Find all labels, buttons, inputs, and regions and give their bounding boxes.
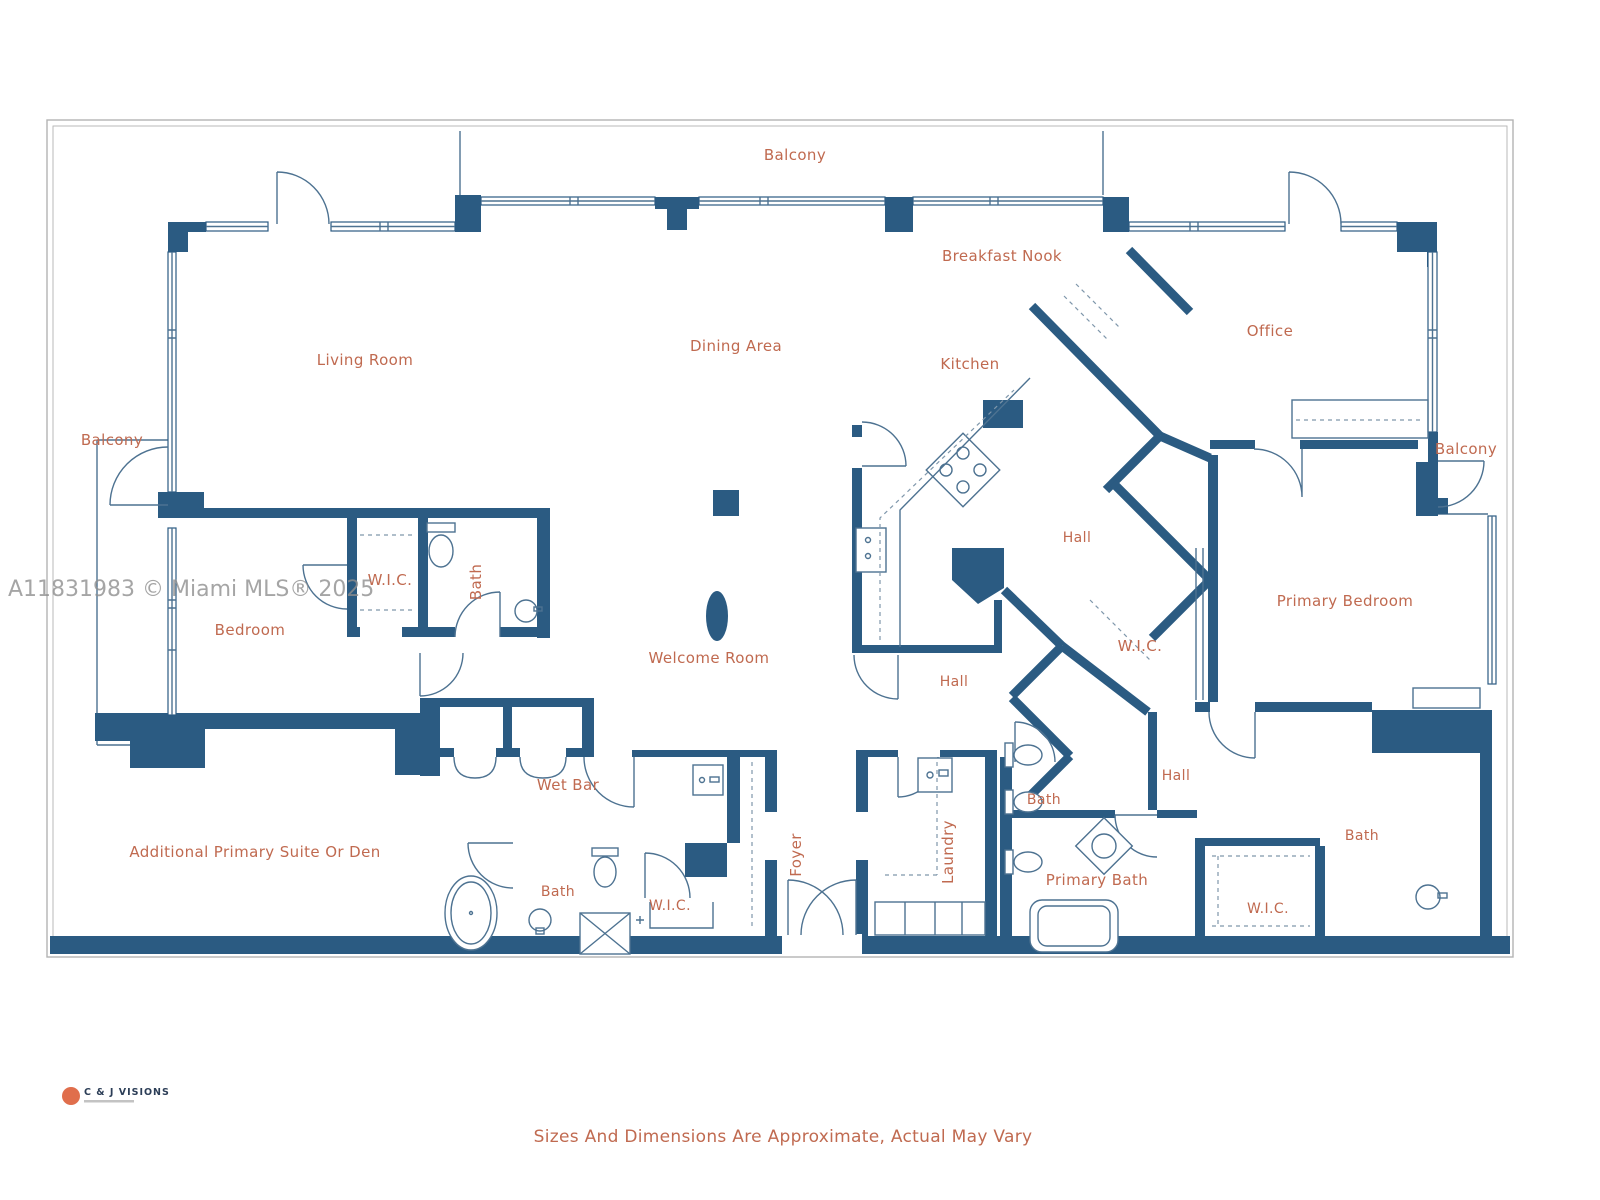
washer-fixture bbox=[918, 758, 952, 792]
room-label-foyer: Foyer bbox=[787, 833, 805, 877]
room-label-laundry: Laundry bbox=[939, 820, 957, 884]
room-labels: Balcony Breakfast Nook Office Living Roo… bbox=[81, 146, 1497, 917]
room-label-balcony-right: Balcony bbox=[1435, 440, 1497, 458]
room-label-balcony-left: Balcony bbox=[81, 431, 143, 449]
room-label-hall-center: Hall bbox=[940, 674, 969, 690]
floor-plan-page: Balcony Breakfast Nook Office Living Roo… bbox=[0, 0, 1600, 1200]
room-label-living-room: Living Room bbox=[317, 351, 413, 369]
room-label-hall-upper: Hall bbox=[1063, 530, 1092, 546]
room-label-balcony-top: Balcony bbox=[764, 146, 826, 164]
windows bbox=[168, 197, 1496, 715]
room-label-kitchen: Kitchen bbox=[940, 355, 999, 373]
logo-tagline-bar bbox=[84, 1100, 134, 1103]
logo-circle-icon bbox=[62, 1087, 80, 1105]
room-label-hall-lower: Hall bbox=[1162, 768, 1191, 784]
room-label-primary-bedroom: Primary Bedroom bbox=[1277, 592, 1414, 610]
room-label-bath-small: Bath bbox=[1027, 792, 1061, 808]
fixtures bbox=[427, 433, 1447, 954]
room-label-bath-left: Bath bbox=[467, 564, 485, 600]
page-frame bbox=[47, 120, 1513, 957]
room-label-wic-right: W.I.C. bbox=[1247, 901, 1289, 917]
floor-plan-drawing: Balcony Breakfast Nook Office Living Roo… bbox=[0, 0, 1600, 1200]
doors bbox=[110, 172, 1484, 935]
room-label-wic-mid: W.I.C. bbox=[1118, 637, 1163, 655]
room-label-bath-bottom-left: Bath bbox=[541, 884, 575, 900]
room-label-dining-area: Dining Area bbox=[690, 337, 782, 355]
room-label-welcome-room: Welcome Room bbox=[649, 649, 770, 667]
company-logo: C & J VISIONS bbox=[62, 1087, 170, 1105]
room-label-bedroom: Bedroom bbox=[215, 621, 286, 639]
room-label-office: Office bbox=[1247, 322, 1293, 340]
room-label-bath-right: Bath bbox=[1345, 828, 1379, 844]
disclaimer-text: Sizes And Dimensions Are Approximate, Ac… bbox=[534, 1127, 1033, 1147]
room-label-primary-bath: Primary Bath bbox=[1046, 871, 1148, 889]
stove-fixture bbox=[926, 433, 1000, 507]
room-label-breakfast-nook: Breakfast Nook bbox=[942, 247, 1062, 265]
room-label-wic-left: W.I.C. bbox=[368, 571, 413, 589]
diagonal-walls bbox=[1004, 250, 1210, 808]
window-band bbox=[168, 197, 1496, 715]
mls-watermark: A11831983 © Miami MLS® 2025 bbox=[8, 577, 374, 602]
logo-name: C & J VISIONS bbox=[84, 1087, 170, 1098]
room-label-wic-bottom: W.I.C. bbox=[649, 898, 691, 914]
room-label-wet-bar: Wet Bar bbox=[537, 776, 600, 794]
walls bbox=[50, 195, 1510, 954]
room-label-additional-suite: Additional Primary Suite Or Den bbox=[129, 843, 380, 861]
